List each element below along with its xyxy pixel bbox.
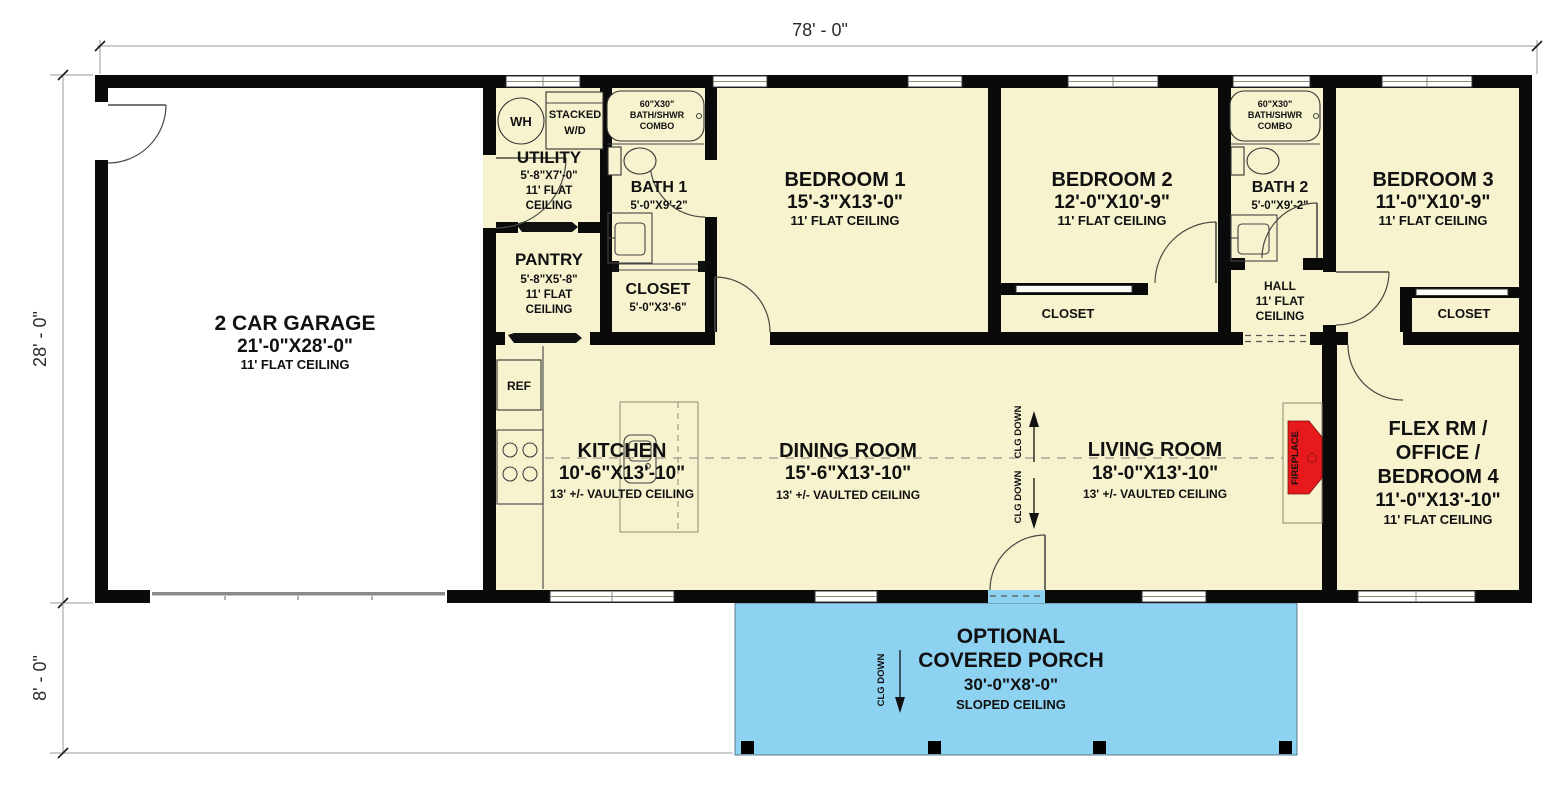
- bath1-toilet-bowl: [624, 148, 656, 174]
- bath2-name: BATH 2: [1252, 179, 1309, 196]
- flex-name2: OFFICE /: [1396, 442, 1481, 464]
- porch-post: [1093, 741, 1106, 754]
- bath2-tub-label2: BATH/SHWR: [1248, 110, 1303, 120]
- bath1-size: 5'-0"X9'-2": [630, 200, 687, 212]
- dining-ceiling: 13' +/- VAULTED CEILING: [776, 488, 920, 502]
- refrigerator-label: REF: [507, 379, 531, 393]
- window-kitchen: [550, 591, 674, 602]
- dim-left-porch-label: 8' - 0": [30, 655, 50, 701]
- living-size: 18'-0"X13'-10": [1092, 463, 1218, 484]
- clg-down-label-upper: CLG DOWN: [1013, 405, 1024, 458]
- pocket-door-utility-pantry: [516, 222, 578, 232]
- bath1-name: BATH 1: [631, 179, 688, 196]
- hall-name: HALL: [1264, 279, 1296, 293]
- pantry-name: PANTRY: [515, 250, 584, 269]
- bath2-tub-label1: 60"X30": [1258, 99, 1293, 109]
- wall-bedroom2-bath2: [1218, 88, 1231, 332]
- porch-clg-down-label: CLG DOWN: [876, 653, 887, 706]
- opening-hall-cased: [1243, 332, 1310, 345]
- fireplace-label: FIREPLACE: [1290, 431, 1301, 485]
- utility-ceiling2: CEILING: [526, 200, 573, 212]
- opening-bedroom3-door: [1323, 272, 1336, 325]
- opening-bedroom1-door: [715, 332, 770, 345]
- garage-ceiling: 11' FLAT CEILING: [240, 357, 349, 372]
- dim-left-main-label: 28' - 0": [30, 311, 50, 367]
- closet1-shelf-cap: [698, 261, 705, 272]
- bedroom3-name: BEDROOM 3: [1372, 169, 1493, 191]
- hall-ceiling1: 11' FLAT: [1256, 294, 1305, 308]
- porch-name2: COVERED PORCH: [918, 649, 1104, 672]
- bath1-tub-label3: COMBO: [640, 121, 675, 131]
- window-bath2: [1233, 76, 1310, 87]
- opening-bath2-door: [1245, 258, 1303, 270]
- opening-utility-door: [483, 155, 496, 228]
- opening-flex-door: [1348, 332, 1403, 345]
- washer-dryer-label1: STACKED: [549, 109, 601, 121]
- bath2-size: 5'-0"X9'-2": [1251, 200, 1308, 212]
- utility-size: 5'-8"X7'-0": [520, 170, 577, 182]
- dining-name: DINING ROOM: [779, 440, 917, 462]
- porch-ceiling: SLOPED CEILING: [956, 697, 1066, 712]
- kitchen-name: KITCHEN: [578, 440, 667, 462]
- bedroom3-size: 11'-0"X10'-9": [1376, 192, 1491, 213]
- clg-down-label-lower: CLG DOWN: [1013, 470, 1024, 523]
- opening-garage-entry: [95, 102, 108, 160]
- window-living: [1142, 591, 1206, 602]
- floor-plan-drawing: 78' - 0" 28' - 0" 8' - 0" 2 CAR GARAGE 2…: [0, 0, 1565, 800]
- water-heater-label: WH: [510, 114, 532, 129]
- garage-name: 2 CAR GARAGE: [214, 312, 375, 335]
- porch-post: [741, 741, 754, 754]
- window-bedroom2: [1068, 76, 1158, 87]
- flex-ceiling: 11' FLAT CEILING: [1383, 512, 1492, 527]
- pantry-ceiling1: 11' FLAT: [526, 289, 573, 301]
- bedroom2-ceiling: 11' FLAT CEILING: [1057, 213, 1166, 228]
- bedroom1-ceiling: 11' FLAT CEILING: [790, 213, 899, 228]
- flex-name3: BEDROOM 4: [1377, 466, 1499, 488]
- window-utility: [506, 76, 580, 87]
- utility-name: UTILITY: [517, 148, 582, 167]
- hall-ceiling2: CEILING: [1256, 309, 1305, 323]
- closet1-name: CLOSET: [626, 281, 691, 298]
- flex-size: 11'-0"X13'-10": [1375, 490, 1500, 511]
- bedroom1-name: BEDROOM 1: [784, 169, 905, 191]
- bath2-tub-label3: COMBO: [1258, 121, 1293, 131]
- bedroom3-ceiling: 11' FLAT CEILING: [1378, 213, 1487, 228]
- window-bedroom3: [1382, 76, 1472, 87]
- kitchen-size: 10'-6"X13'-10": [559, 463, 685, 484]
- dim-top-label: 78' - 0": [792, 20, 848, 40]
- porch-size: 30'-0"X8'-0": [964, 675, 1058, 694]
- closet1-size: 5'-0"X3'-6": [629, 302, 686, 314]
- kitchen-ceiling: 13' +/- VAULTED CEILING: [550, 487, 694, 501]
- living-name: LIVING ROOM: [1088, 439, 1222, 461]
- window-dining: [815, 591, 877, 602]
- garage-size: 21'-0"X28'-0": [237, 336, 353, 357]
- wall-exterior-top: [95, 75, 1532, 88]
- pocket-door-pantry-kitchen: [508, 333, 582, 343]
- bath2-toilet-tank: [1231, 147, 1244, 175]
- window-bedroom1-left: [713, 76, 767, 87]
- porch-post: [928, 741, 941, 754]
- dining-size: 15'-6"X13'-10": [785, 463, 911, 484]
- bedroom1-size: 15'-3"X13'-0": [787, 192, 903, 213]
- bedroom2-size: 12'-0"X10'-9": [1054, 192, 1170, 213]
- window-flex: [1358, 591, 1475, 602]
- porch-post: [1279, 741, 1292, 754]
- bath1-tub-label2: BATH/SHWR: [630, 110, 685, 120]
- garage-door-panel: [152, 592, 445, 596]
- flex-name1: FLEX RM /: [1389, 418, 1488, 440]
- wall-bedroom1-bedroom2: [988, 88, 1001, 345]
- porch-name1: OPTIONAL: [957, 625, 1066, 648]
- pantry-ceiling2: CEILING: [526, 304, 573, 316]
- window-bedroom1-right: [908, 76, 962, 87]
- pantry-size: 5'-8"X5'-8": [520, 274, 577, 286]
- closet3-shelf: [1416, 289, 1508, 296]
- utility-ceiling1: 11' FLAT: [526, 185, 573, 197]
- closet2-name: CLOSET: [1042, 306, 1095, 321]
- living-ceiling: 13' +/- VAULTED CEILING: [1083, 487, 1227, 501]
- bedroom2-name: BEDROOM 2: [1051, 169, 1172, 191]
- bath2-toilet-bowl: [1247, 148, 1279, 174]
- opening-bath1-door: [705, 160, 717, 217]
- wall-living-flex: [1322, 345, 1337, 590]
- closet3-name: CLOSET: [1438, 306, 1491, 321]
- closet2-shelf: [1016, 286, 1132, 293]
- bath1-tub-label1: 60"X30": [640, 99, 675, 109]
- bath1-toilet-tank: [608, 147, 621, 175]
- washer-dryer-label2: W/D: [564, 125, 585, 137]
- floor-plan-canvas: 78' - 0" 28' - 0" 8' - 0" 2 CAR GARAGE 2…: [0, 0, 1565, 800]
